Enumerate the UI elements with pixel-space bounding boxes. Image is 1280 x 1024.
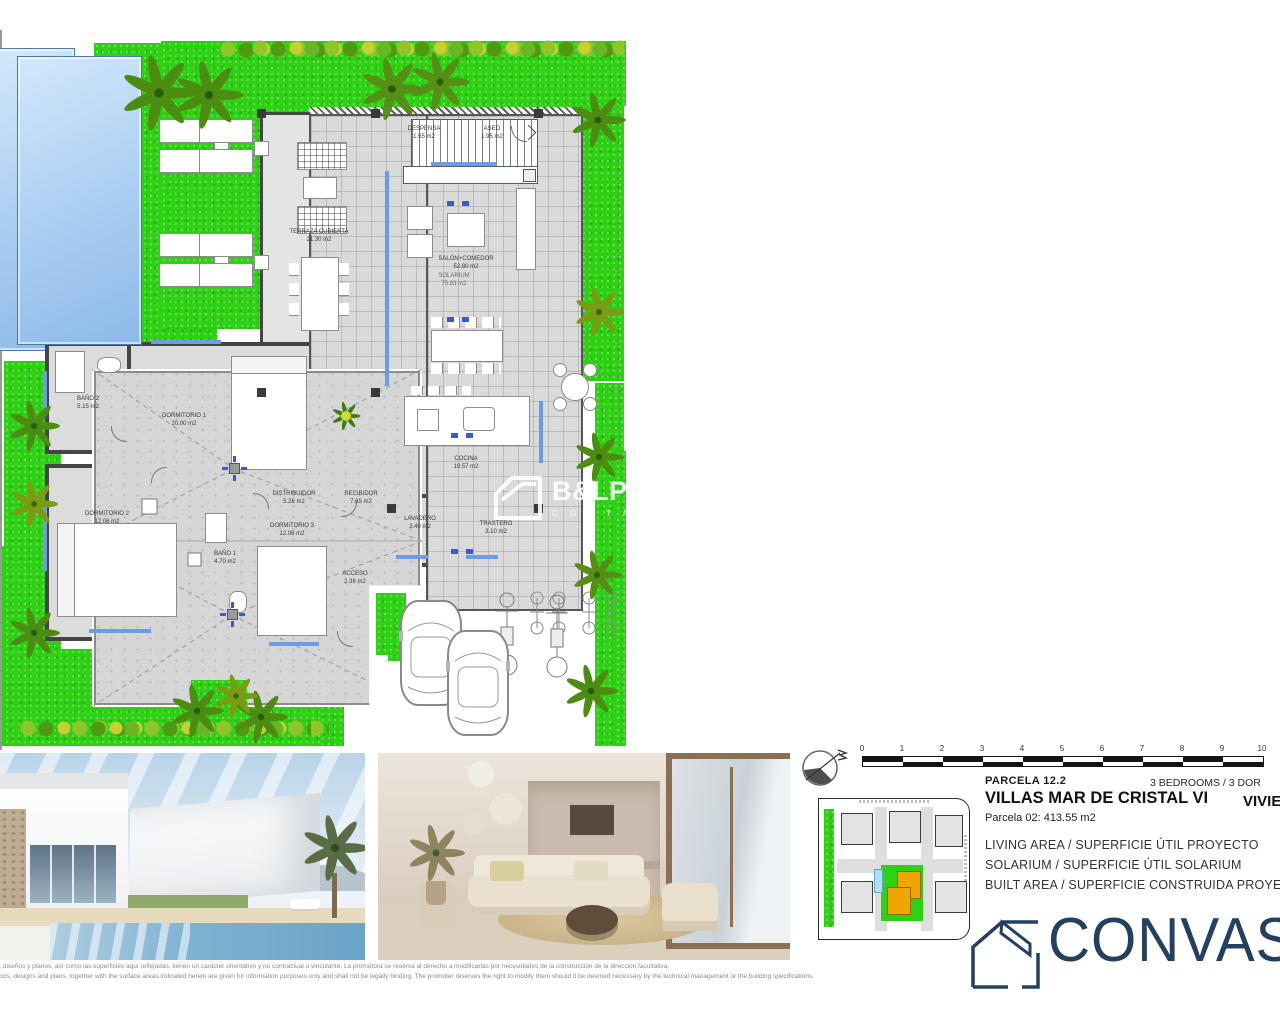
watermark-tagline: C O S T A B L A N C A: [552, 509, 799, 518]
label-terraza: TERRAZA CUBIERTA21.30 m2: [269, 229, 369, 245]
bed-pillow: [57, 523, 75, 617]
label-recibidor: RECIBIDOR7.65 m2: [331, 491, 391, 507]
photo-cushion: [574, 861, 608, 881]
vent-marker: [447, 317, 469, 322]
side-table: [254, 141, 269, 156]
terrace-chairs: [339, 263, 349, 323]
patio-chair: [553, 363, 567, 377]
palm-tree-icon: [563, 663, 619, 719]
window: [151, 340, 221, 344]
palm-tree-icon: [409, 51, 471, 113]
bed: [257, 546, 327, 636]
minimap-house: [889, 811, 921, 843]
window: [269, 642, 319, 646]
photo-cushion: [490, 861, 524, 881]
minimap-street-label: [859, 800, 931, 803]
watermark-text: B&LPROMOTIONS C O S T A B L A N C A: [552, 476, 799, 518]
roof-vent: [227, 609, 238, 620]
photo-plant-icon: [406, 823, 466, 883]
convasa-logo: CONVAS: [964, 905, 1280, 1005]
label-lavadero: LAVADERO3.40 m2: [387, 516, 453, 532]
photo-plant-pot: [426, 881, 446, 905]
patio-chair: [583, 397, 597, 411]
minimap-house: [935, 881, 967, 913]
washbasin: [97, 357, 121, 373]
window: [396, 555, 428, 559]
label-dormitorio2: DORMITORIO 212.06 m2: [57, 511, 157, 527]
palm-tree-icon: [7, 606, 61, 660]
potted-plant-pot: [341, 411, 351, 421]
photo-villa-fascia: [0, 773, 128, 789]
photo-stone-pillar: [0, 809, 26, 921]
scale-tick: 10: [1252, 744, 1272, 753]
scale-tick: 7: [1132, 744, 1152, 753]
watermark-brand: B&LPROMOTIONS: [552, 476, 799, 507]
watermark-house-icon: [492, 474, 544, 520]
scale-tick: 5: [1052, 744, 1072, 753]
scale-tick: 6: [1092, 744, 1112, 753]
bedrooms-label: 3 BEDROOMS / 3 DOR: [1150, 777, 1261, 789]
sunbed: [199, 263, 253, 287]
armchair: [407, 206, 433, 230]
terrace-cabinet: [303, 177, 337, 199]
photo-sofa: [468, 875, 650, 915]
patio-table: [561, 373, 589, 401]
exterior-photo: [0, 753, 365, 960]
shower: [205, 513, 227, 543]
parcela-label: PARCELA 12.2: [985, 775, 1066, 787]
site-plan-minimap: [818, 798, 970, 940]
minimap-house: [935, 815, 963, 847]
vent-marker: [447, 201, 469, 206]
label-dormitorio3: DORMITORIO 312.06 m2: [253, 523, 331, 539]
glass-wall: [385, 171, 389, 386]
palm-tree-icon: [569, 91, 627, 149]
stair-landing: [403, 166, 538, 184]
window: [466, 555, 498, 559]
side-table: [254, 255, 269, 270]
sunbed: [199, 149, 253, 173]
dining-chairs: [431, 363, 501, 374]
vent-marker: [451, 549, 473, 554]
photo-pool-steps: [50, 923, 190, 960]
window: [431, 162, 497, 166]
watermark: B&LPROMOTIONS C O S T A B L A N C A: [492, 474, 799, 520]
vent-marker: [451, 433, 473, 438]
terrace-chairs: [289, 263, 299, 323]
north-arrow-icon: [794, 738, 852, 792]
photo-pendant-lamp: [490, 793, 522, 825]
parcela-detail: Parcela 02: 413.55 m2: [985, 812, 1096, 824]
scale-tick: 1: [892, 744, 912, 753]
minimap-house: [841, 881, 873, 913]
terrace-table: [301, 257, 339, 331]
sunbed: [199, 233, 253, 257]
pillar: [257, 109, 266, 118]
area-line-living: LIVING AREA / SUPERFICIE ÚTIL PROYECTO: [985, 838, 1259, 852]
stair-post: [523, 169, 536, 182]
palm-tree-icon: [7, 399, 61, 453]
label-dormitorio1: DORMITORIO 120.00 m2: [139, 413, 229, 429]
label-trastero: TRASTERO3.10 m2: [459, 521, 533, 537]
label-cocina: COCINA10.57 m2: [416, 456, 516, 472]
label-acceso: ACCESO2.36 m2: [325, 571, 385, 587]
scale-bar-body: [862, 756, 1264, 767]
dining-table: [431, 330, 503, 362]
scale-tick: 8: [1172, 744, 1192, 753]
palm-tree-icon: [573, 286, 625, 338]
disclaimer-en: tions, designs and plans, together with …: [0, 973, 814, 980]
minimap-house: [841, 813, 873, 845]
photo-pendant-lamp: [468, 761, 494, 787]
photo-lounger: [290, 899, 320, 909]
photo-coffee-table: [566, 905, 618, 935]
pillar: [371, 388, 380, 397]
photo-door-frame: [730, 767, 733, 927]
photo-armchair: [662, 883, 718, 931]
area-line-built: BUILT AREA / SUPERFICIE CONSTRUIDA PROYE…: [985, 878, 1280, 892]
pillar: [534, 109, 543, 118]
scale-tick: 3: [972, 744, 992, 753]
armchair: [407, 234, 433, 258]
label-distribuidor: DISTRIBUIDOR5.26 m2: [261, 491, 327, 507]
minimap-green-strip: [824, 809, 834, 927]
palm-tree-icon: [9, 479, 59, 529]
bed: [57, 523, 177, 617]
scale-bar: 0 1 2 3 4 5 6 7 8 9 10: [862, 744, 1272, 772]
convasa-wordmark: CONVAS: [1048, 905, 1280, 976]
label-solarium: SOLARIUM75.83 m2: [409, 273, 499, 289]
scale-tick: 2: [932, 744, 952, 753]
convasa-house-icon: [964, 913, 1046, 991]
area-line-solarium: SOLARIUM / SUPERFICIE ÚTIL SOLARIUM: [985, 858, 1242, 872]
disclaimer-es: s, diseños y planos, así como las superf…: [0, 963, 669, 970]
photo-palm-icon: [300, 813, 365, 883]
scale-tick: 4: [1012, 744, 1032, 753]
kitchen-sink: [463, 407, 495, 431]
patio-chair: [553, 397, 567, 411]
palm-tree-icon: [173, 59, 245, 131]
kitchen-stools: [411, 386, 471, 395]
scale-tick: 9: [1212, 744, 1232, 753]
photo-villa-volume: [130, 793, 320, 908]
patio-chair: [583, 363, 597, 377]
vivienda-label: VIVIE: [1243, 793, 1280, 810]
roof-vent: [229, 463, 240, 474]
palm-tree-icon: [571, 549, 623, 601]
label-aseo: ASEO1.95 m2: [463, 126, 521, 142]
scale-tick: 0: [852, 744, 872, 753]
palm-tree-icon: [213, 673, 259, 719]
cooktop: [417, 409, 439, 431]
label-bano1: BAÑO 14.70 m2: [197, 551, 253, 567]
minimap-pool: [874, 869, 883, 893]
shower: [55, 351, 85, 393]
pergola-grill: [297, 142, 347, 170]
scale-bar-row: [863, 762, 1263, 767]
project-title: VILLAS MAR DE CRISTAL VI: [985, 789, 1208, 808]
pillar: [257, 388, 266, 397]
photo-tv-niche: [570, 805, 614, 835]
bed-pillow: [231, 356, 307, 374]
window: [89, 629, 151, 633]
label-salon: SALÓN+COMEDOR52.80 m2: [401, 256, 531, 272]
car-icon: [446, 629, 510, 737]
label-despensa: DESPENSA1.55 m2: [395, 126, 453, 142]
minimap-selected-house: [887, 887, 911, 915]
coffee-table: [447, 213, 485, 247]
window: [539, 401, 543, 463]
interior-photo: [378, 753, 790, 960]
photo-glass-mullions: [30, 845, 116, 903]
